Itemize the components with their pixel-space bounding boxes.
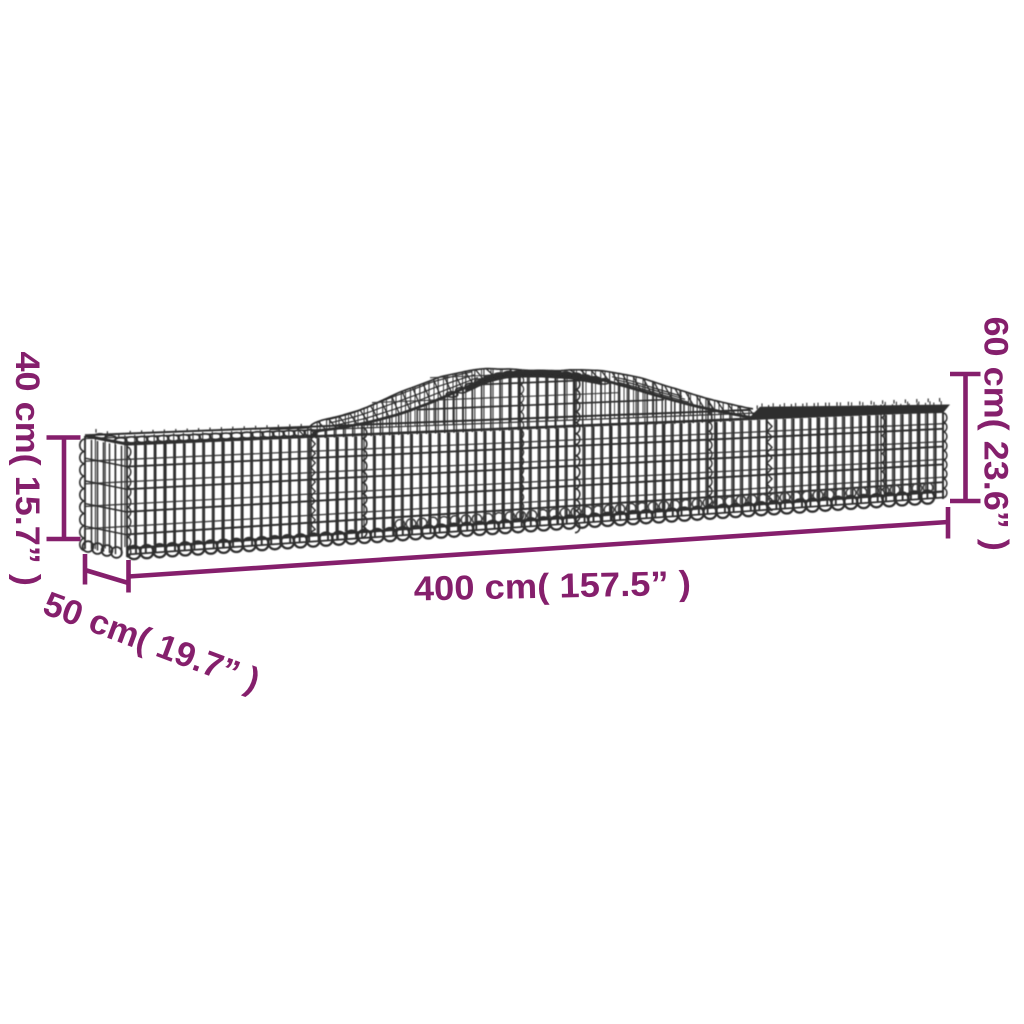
svg-text:400 cm( 157.5” ): 400 cm( 157.5” ): [413, 564, 691, 609]
svg-text:60 cm( 23.6” ): 60 cm( 23.6” ): [976, 317, 1014, 551]
svg-text:40 cm( 15.7” ): 40 cm( 15.7” ): [8, 352, 46, 586]
